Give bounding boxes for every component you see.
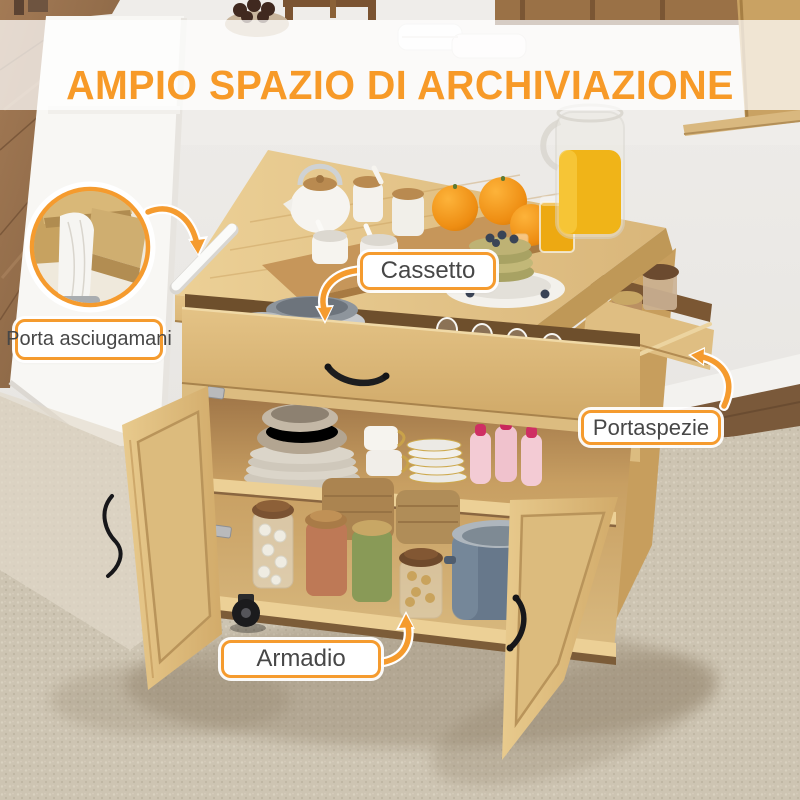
- callout-label-porta-asciugamani: Porta asciugamani: [15, 319, 163, 360]
- callout-label-cassetto: Cassetto: [360, 252, 496, 290]
- callout-text: Armadio: [256, 645, 345, 673]
- callout-text: Porta asciugamani: [6, 328, 172, 351]
- towel-holder-inset: [28, 185, 152, 309]
- juice-pitcher: [543, 105, 624, 238]
- pink-bottles: [470, 418, 542, 486]
- towel: [58, 212, 94, 306]
- title-band: AMPIO SPAZIO DI ARCHIVIAZIONE: [0, 20, 800, 110]
- callout-label-armadio: Armadio: [221, 640, 381, 678]
- page-title: AMPIO SPAZIO DI ARCHIVIAZIONE: [16, 62, 784, 109]
- product-photo-scene: [0, 0, 800, 800]
- stool-leg: [14, 0, 24, 15]
- saucer-stack: [407, 439, 467, 483]
- canister: [392, 194, 424, 236]
- callout-text: Cassetto: [381, 257, 476, 285]
- stool-seat: [28, 0, 48, 12]
- callout-label-portaspezie: Portaspezie: [581, 410, 721, 445]
- product-infographic: AMPIO SPAZIO DI ARCHIVIAZIONE Cassetto P…: [0, 0, 800, 800]
- callout-text: Portaspezie: [593, 415, 709, 441]
